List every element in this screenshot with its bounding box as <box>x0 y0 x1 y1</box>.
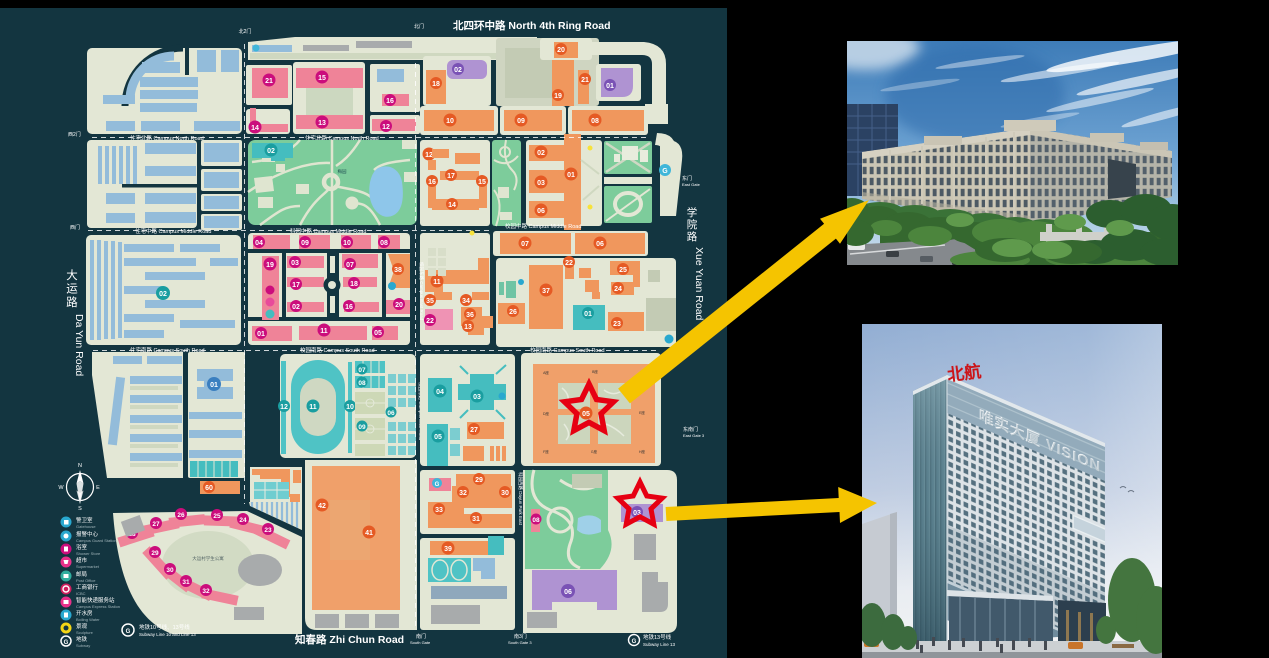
svg-text:D座: D座 <box>543 411 550 416</box>
svg-text:14: 14 <box>448 202 456 209</box>
svg-text:06: 06 <box>537 208 545 215</box>
svg-text:09: 09 <box>358 424 366 431</box>
svg-text:智能快递服务站: 智能快递服务站 <box>76 596 115 604</box>
svg-text:Campus Guard Station: Campus Guard Station <box>76 538 117 543</box>
svg-text:大: 大 <box>66 268 78 282</box>
svg-text:01: 01 <box>584 311 592 318</box>
svg-text:29: 29 <box>475 477 483 484</box>
svg-text:21: 21 <box>581 77 589 84</box>
svg-text:运: 运 <box>66 283 78 296</box>
svg-text:42: 42 <box>318 503 326 510</box>
svg-text:02: 02 <box>537 150 545 157</box>
svg-text:31: 31 <box>472 516 480 523</box>
svg-text:19: 19 <box>266 262 274 269</box>
svg-text:03: 03 <box>537 180 545 187</box>
svg-text:08: 08 <box>591 118 599 125</box>
svg-text:04: 04 <box>436 389 444 396</box>
svg-text:11: 11 <box>433 279 441 286</box>
svg-text:Sculpture: Sculpture <box>76 630 94 635</box>
svg-text:12: 12 <box>382 124 390 131</box>
svg-text:21: 21 <box>265 78 273 85</box>
svg-text:07: 07 <box>346 262 354 269</box>
svg-text:15: 15 <box>318 75 326 82</box>
svg-text:34: 34 <box>462 298 470 305</box>
svg-text:Campus Express Station: Campus Express Station <box>76 604 120 609</box>
svg-text:G: G <box>126 629 131 635</box>
svg-text:学: 学 <box>687 206 698 219</box>
svg-text:01: 01 <box>210 382 218 389</box>
svg-text:Post Office: Post Office <box>76 578 96 583</box>
svg-text:Boiling Water: Boiling Water <box>76 617 100 622</box>
svg-text:22: 22 <box>426 318 434 325</box>
svg-text:36: 36 <box>466 312 474 319</box>
svg-text:14: 14 <box>251 125 259 132</box>
svg-text:02: 02 <box>454 67 462 74</box>
svg-text:开水房: 开水房 <box>76 609 93 617</box>
svg-text:Gatehouse: Gatehouse <box>76 524 96 529</box>
svg-text:Subway: Subway <box>76 643 90 648</box>
svg-text:路: 路 <box>66 295 78 309</box>
svg-text:G座: G座 <box>591 449 598 454</box>
svg-text:07: 07 <box>358 367 366 374</box>
svg-text:G: G <box>64 640 69 646</box>
svg-text:E: E <box>96 485 100 491</box>
svg-text:报警中心: 报警中心 <box>76 530 99 538</box>
svg-text:10: 10 <box>346 404 354 411</box>
svg-text:24: 24 <box>239 517 247 524</box>
svg-text:科园西路 Dayun Park East: 科园西路 Dayun Park East <box>517 472 524 526</box>
svg-text:B座: B座 <box>592 369 598 374</box>
svg-text:W: W <box>58 485 64 491</box>
svg-text:S: S <box>78 506 82 512</box>
svg-text:04: 04 <box>255 240 263 247</box>
svg-text:F座: F座 <box>543 449 549 454</box>
svg-text:G: G <box>435 482 440 488</box>
svg-text:08: 08 <box>380 240 388 247</box>
svg-text:03: 03 <box>473 394 481 401</box>
svg-text:Xue Yuan Road: Xue Yuan Road <box>693 247 705 321</box>
svg-text:路: 路 <box>687 230 698 243</box>
svg-text:26: 26 <box>177 512 185 519</box>
svg-text:Subway Line 13: Subway Line 13 <box>643 642 676 647</box>
svg-text:13: 13 <box>464 324 472 331</box>
svg-text:South Gate 3: South Gate 3 <box>508 640 532 645</box>
svg-text:16: 16 <box>345 304 353 311</box>
svg-text:20: 20 <box>557 47 565 54</box>
svg-text:校园南路 Campus South Road: 校园南路 Campus South Road <box>530 346 605 354</box>
svg-text:Shower Store: Shower Store <box>76 551 101 556</box>
svg-text:10: 10 <box>343 240 351 247</box>
svg-text:西2门: 西2门 <box>68 131 81 138</box>
svg-text:33: 33 <box>435 507 443 514</box>
svg-text:梅园: 梅园 <box>338 168 347 175</box>
svg-text:南3门: 南3门 <box>514 633 527 640</box>
svg-text:06: 06 <box>387 410 395 417</box>
svg-text:32: 32 <box>202 588 210 595</box>
svg-text:邮局: 邮局 <box>76 570 87 578</box>
svg-text:南门: 南门 <box>416 633 426 640</box>
svg-text:E座: E座 <box>639 410 645 415</box>
svg-text:08: 08 <box>532 517 540 524</box>
svg-text:25: 25 <box>619 267 627 274</box>
svg-text:37: 37 <box>542 288 550 295</box>
svg-text:07: 07 <box>521 241 529 248</box>
svg-text:院: 院 <box>687 218 698 231</box>
svg-text:06: 06 <box>564 589 572 596</box>
svg-text:北四环中路 North 4th Ring Road: 北四环中路 North 4th Ring Road <box>453 19 611 32</box>
svg-text:03: 03 <box>291 260 299 267</box>
svg-text:Supermarket: Supermarket <box>76 564 100 569</box>
svg-text:N: N <box>78 463 82 469</box>
svg-text:05: 05 <box>434 434 442 441</box>
svg-text:25: 25 <box>213 513 221 520</box>
svg-text:35: 35 <box>426 298 434 305</box>
svg-text:Da Yun Road: Da Yun Road <box>73 314 85 376</box>
svg-text:22: 22 <box>565 260 573 267</box>
svg-text:24: 24 <box>614 286 622 293</box>
svg-text:ICBC: ICBC <box>76 591 86 596</box>
svg-text:06: 06 <box>596 241 604 248</box>
svg-text:北门: 北门 <box>414 23 424 30</box>
svg-text:09: 09 <box>301 240 309 247</box>
svg-text:G: G <box>662 168 668 175</box>
svg-text:超市: 超市 <box>76 556 88 564</box>
svg-text:校园中路 Campus Middle Road: 校园中路 Campus Middle Road <box>505 222 581 230</box>
svg-text:Subway Line 10 and Line 13: Subway Line 10 and Line 13 <box>139 632 196 637</box>
svg-text:16: 16 <box>386 98 394 105</box>
svg-text:01: 01 <box>606 83 614 90</box>
svg-text:浴室: 浴室 <box>76 543 88 551</box>
svg-text:02: 02 <box>159 291 167 298</box>
svg-text:G: G <box>632 639 637 645</box>
svg-text:北2门: 北2门 <box>239 28 252 35</box>
svg-text:31: 31 <box>182 579 190 586</box>
svg-text:15: 15 <box>478 179 486 186</box>
svg-text:13: 13 <box>318 120 326 127</box>
svg-text:05: 05 <box>582 411 590 418</box>
svg-text:10: 10 <box>446 118 454 125</box>
svg-text:01: 01 <box>257 331 265 338</box>
svg-text:地铁10号线、13号线: 地铁10号线、13号线 <box>139 623 190 631</box>
svg-text:景观: 景观 <box>76 623 88 630</box>
svg-text:East Gate 3: East Gate 3 <box>683 433 705 438</box>
svg-text:41: 41 <box>365 530 373 537</box>
svg-text:27: 27 <box>470 427 478 434</box>
svg-text:01: 01 <box>567 172 575 179</box>
svg-text:地铁: 地铁 <box>76 635 88 643</box>
svg-text:11: 11 <box>320 328 328 335</box>
svg-text:东门: 东门 <box>682 175 692 182</box>
svg-text:23: 23 <box>264 527 272 534</box>
svg-text:32: 32 <box>459 490 467 497</box>
svg-text:地铁13号线: 地铁13号线 <box>643 633 672 641</box>
svg-text:17: 17 <box>447 173 455 180</box>
svg-text:18: 18 <box>350 281 358 288</box>
svg-text:A座: A座 <box>543 370 549 375</box>
svg-text:20: 20 <box>395 302 403 309</box>
svg-text:北航: 北航 <box>946 361 982 385</box>
svg-text:12: 12 <box>280 404 288 411</box>
svg-text:38: 38 <box>394 267 402 274</box>
svg-text:East Gate: East Gate <box>682 182 701 187</box>
svg-text:校园东路 Campus East Road: 校园东路 Campus East Road <box>418 262 425 321</box>
svg-text:18: 18 <box>432 81 440 88</box>
svg-text:西门: 西门 <box>70 224 80 231</box>
svg-text:H座: H座 <box>639 449 646 454</box>
svg-text:东南门: 东南门 <box>683 426 698 433</box>
svg-text:26: 26 <box>509 309 517 316</box>
svg-text:29: 29 <box>151 550 159 557</box>
svg-text:39: 39 <box>444 546 452 553</box>
svg-text:02: 02 <box>292 304 300 311</box>
svg-text:知春路 Zhi Chun Road: 知春路 Zhi Chun Road <box>295 633 404 646</box>
svg-text:警卫室: 警卫室 <box>76 516 93 524</box>
svg-text:05: 05 <box>374 330 382 337</box>
svg-text:12: 12 <box>425 152 433 159</box>
svg-text:11: 11 <box>309 404 317 411</box>
svg-text:02: 02 <box>267 148 275 155</box>
svg-text:大运村学生公寓: 大运村学生公寓 <box>192 555 224 562</box>
svg-text:23: 23 <box>613 321 621 328</box>
svg-text:08: 08 <box>358 380 366 387</box>
svg-text:30: 30 <box>501 490 509 497</box>
svg-text:16: 16 <box>428 179 436 186</box>
svg-text:工商银行: 工商银行 <box>76 583 99 591</box>
svg-text:17: 17 <box>292 282 300 289</box>
svg-text:South Gate: South Gate <box>410 640 431 645</box>
svg-text:19: 19 <box>554 93 562 100</box>
svg-text:09: 09 <box>517 118 525 125</box>
svg-text:60: 60 <box>205 485 213 492</box>
svg-text:30: 30 <box>166 567 174 574</box>
svg-text:27: 27 <box>152 521 160 528</box>
